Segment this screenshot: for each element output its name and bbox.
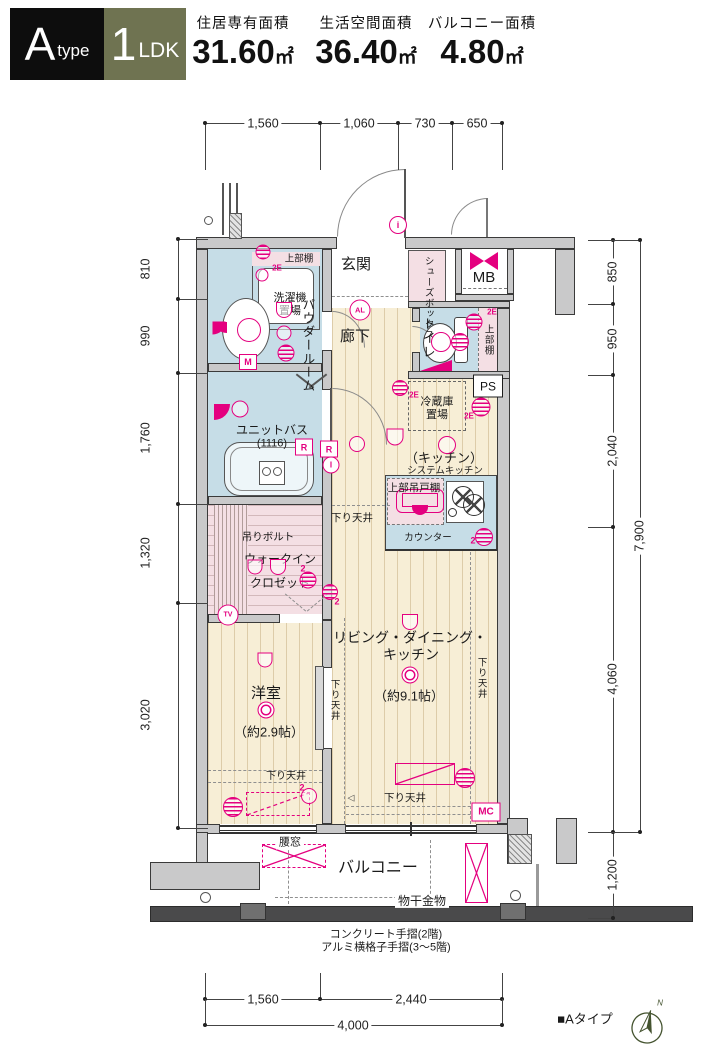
wall-mb-bottom [455, 294, 514, 301]
dim-left-dot [176, 297, 180, 301]
dim-right-inner-label: 2,040 [606, 432, 621, 469]
tag-r1: R [295, 439, 313, 456]
tag-mc: MC [472, 803, 501, 822]
tag-i2: I [323, 457, 340, 474]
light-hall-icon [349, 436, 365, 452]
dim-right-inner-tick [588, 918, 613, 919]
wic-hatch-zone [214, 505, 248, 614]
dim-left-tick [178, 828, 208, 829]
pipe-hatch-right [508, 834, 532, 864]
light-yoshitsu-c-icon [301, 788, 317, 804]
tag-r2: R [320, 441, 338, 458]
mb-bowtie-icon [470, 252, 484, 270]
dim-top-label: 1,560 [244, 116, 281, 131]
balcony-drain-right [510, 890, 521, 901]
label-sagari-yoshitsu: 下り天井 [266, 771, 306, 783]
area-balcony-unit: ㎡ [505, 47, 524, 68]
dim-top-tick [452, 123, 453, 170]
dim-left-label: 990 [139, 323, 154, 350]
light-kitchen-b-icon [438, 436, 456, 454]
label-mb: MB [473, 269, 496, 287]
plan-badge: 1 LDK [104, 8, 186, 80]
balcony-divider-thin [536, 864, 539, 906]
room-label-powder: パウダールーム [300, 298, 315, 362]
wall-bath-wic [208, 496, 322, 505]
vent-laundry-icon [256, 245, 271, 260]
label-sagari-bottom: 下り天井 [384, 792, 426, 804]
dim-top-dot [203, 121, 207, 125]
ldk-door-leaf [330, 388, 332, 445]
light-ldk-a-icon [402, 614, 418, 630]
room-label-yoshitsu: 洋室 [251, 685, 281, 703]
dim-right-inner-tick [588, 527, 613, 528]
dim-right-inner-tick [588, 375, 613, 376]
mb-door-leaf [486, 198, 488, 237]
dim-left-tick [178, 239, 208, 240]
compass-n-label: N [657, 998, 663, 1007]
dim-bottom-seg-tick [320, 973, 321, 999]
dim-bottom-total-tick [205, 999, 206, 1025]
wall-left [196, 249, 208, 832]
wall-top-right [405, 237, 575, 249]
window-yoshitsu [220, 825, 316, 834]
area-living-value: 36.40 [315, 33, 398, 70]
dim-right-inner-label: 1,200 [606, 856, 621, 893]
tag-m: M [239, 354, 257, 370]
door-arrow-icon: ◁ [348, 793, 355, 804]
wall-mb-right [507, 249, 514, 294]
vent-ldk-icon [455, 768, 475, 788]
wic-hanger-b-icon [270, 559, 286, 575]
dim-right-inner-dot [611, 916, 615, 920]
dim-right-inner-tick [588, 304, 613, 305]
dim-right-inner-dot [611, 302, 615, 306]
label-counter: カウンター [404, 532, 452, 543]
dim-bottom-seg-label: 2,440 [392, 992, 429, 1007]
dim-bottom-total-label: 4,000 [334, 1018, 371, 1033]
genkan-step-line [332, 296, 408, 297]
stove-burner-c [448, 508, 457, 517]
dim-left-tick [178, 373, 208, 374]
wall-neighbor-top [555, 249, 575, 315]
handrail-post-left [240, 903, 266, 920]
note-handrail-2: アルミ横格子手摺(3〜5階) [321, 942, 450, 955]
dim-right-inner-label: 950 [606, 326, 621, 353]
dim-top-tick [205, 123, 206, 170]
balcony-drain-left [200, 892, 211, 903]
area-living-unit: ㎡ [398, 47, 417, 68]
compass-icon [625, 1002, 669, 1048]
dim-left-label: 810 [139, 256, 154, 283]
wall-spine-1 [322, 249, 332, 312]
sagari-line-kitchen [332, 505, 390, 506]
dim-right-inner-dot [611, 373, 615, 377]
dim-left-label: 1,760 [139, 419, 154, 456]
dim-left-dot [176, 601, 180, 605]
dim-left-tick [178, 603, 208, 604]
dim-left-label: 1,320 [139, 534, 154, 571]
room-label-ldk-1: リビング・ダイニング・ [333, 630, 487, 647]
label-shoes-box: シューズボックス [422, 256, 433, 306]
dim-bottom-seg-tick [502, 973, 503, 999]
balcony-x-mark [465, 843, 488, 903]
label-upper-shelf-toilet: 上部棚 [482, 323, 493, 357]
vent-powder-icon [278, 345, 295, 362]
shaft-line-a [222, 183, 224, 235]
handrail-post-right [500, 903, 526, 920]
light-ldk-b-icon [402, 667, 419, 684]
label-fridge-2e: 2E [409, 390, 419, 399]
label-yoshitsu-size: （約2.9帖） [234, 724, 304, 739]
dim-bottom-seg-dot [318, 997, 322, 1001]
tag-ps: PS [473, 375, 503, 398]
dim-top-label: 650 [464, 116, 491, 131]
light-bath-icon [232, 401, 249, 418]
shaft-hatch [229, 213, 242, 239]
dim-top-tick [398, 123, 399, 170]
dim-bottom-total-dot [500, 1023, 504, 1027]
note-handrail-1: コンクリート手摺(2階) [330, 929, 442, 942]
basin-light-icon [237, 318, 261, 342]
window-mullion [410, 822, 412, 836]
label-tsuri-bolt: 吊りボルト [242, 531, 295, 543]
label-system-kitchen: システムキッチン [407, 465, 483, 476]
wall-balcony-chunk-r2 [556, 818, 577, 864]
shaft-vent [204, 216, 213, 225]
tag-i: i [389, 216, 407, 234]
vent-wall-icon [472, 398, 491, 417]
dim-top-tick [502, 123, 503, 170]
label-hanging-cupboard: 上部吊戸棚 [388, 482, 441, 494]
wall-spine-5 [322, 748, 332, 824]
label-upper-shelf-laundry: 上部棚 [285, 253, 314, 264]
label-monohoshi: 物干金物 [395, 894, 449, 908]
dim-top-label: 730 [412, 116, 439, 131]
area-balcony-label: バルコニー面積 [428, 12, 536, 33]
room-label-rouka: 廊下 [340, 328, 370, 346]
area-exclusive: 住居専有面積 31.60㎡ [192, 12, 294, 71]
vent-wic-b-icon [322, 584, 338, 600]
label-sagari-ldk-right: 下り天井 [475, 656, 486, 700]
wall-bottom-b [316, 824, 346, 834]
dim-bottom-seg-tick [205, 973, 206, 999]
dim-left-line [178, 239, 179, 828]
vent-yoshitsu-icon [223, 797, 243, 817]
area-living-label: 生活空間面積 [315, 12, 417, 33]
bath-control-dial-b [273, 467, 282, 476]
dim-left-tick [178, 299, 208, 300]
wall-balcony-chunk-left [150, 862, 260, 890]
dim-bottom-total-tick [502, 999, 503, 1025]
type-letter: A [25, 21, 56, 67]
area-exclusive-label: 住居専有面積 [192, 12, 294, 33]
toilet-sym-a-icon [431, 332, 451, 352]
dim-left-dot [176, 502, 180, 506]
wall-mb-left [455, 249, 462, 294]
light-powder-b-icon [277, 326, 292, 341]
vent-counter-icon [475, 528, 493, 546]
label-unit-bath: ユニットバス [236, 423, 308, 437]
room-label-balcony: バルコニー [338, 860, 418, 879]
dim-left-dot [176, 371, 180, 375]
dim-left-dot [176, 826, 180, 830]
room-label-genkan: 玄関 [341, 256, 371, 274]
area-balcony: バルコニー面積 4.80㎡ [428, 12, 536, 71]
dim-top-dot [450, 121, 454, 125]
light-yoshitsu-a-icon [258, 653, 273, 668]
label-sagari-ldk-left: 下り天井 [328, 678, 339, 722]
toilet-sym-b-icon [451, 333, 469, 351]
mb-door-arc [451, 198, 488, 235]
wall-spine-4 [322, 620, 332, 668]
aircon-mark [395, 763, 455, 785]
wic-hanger-a-icon [248, 560, 263, 575]
dim-right-inner-label: 4,060 [606, 660, 621, 697]
label-sagari-kitchen: 下り天井 [331, 512, 373, 524]
dim-left-tick [178, 504, 208, 505]
dim-top-dot [396, 121, 400, 125]
dim-right-outer-dot [638, 830, 642, 834]
stove-burner-b [463, 494, 485, 516]
label-toilet-2e: 2E [487, 307, 497, 316]
area-exclusive-unit: ㎡ [275, 47, 294, 68]
light-powder-a-icon [276, 302, 292, 318]
sagari-line-ldk-left [344, 618, 345, 824]
dim-bottom-seg-label: 1,560 [244, 992, 281, 1007]
area-balcony-value: 4.80 [440, 33, 504, 70]
label-fridge: 冷蔵庫置場 [416, 396, 458, 422]
plan-suffix: LDK [138, 39, 179, 63]
plan-number: 1 [111, 21, 137, 67]
area-living: 生活空間面積 36.40㎡ [315, 12, 417, 71]
dim-top-tick [320, 123, 321, 170]
bath-control-dial-a [262, 467, 271, 476]
dim-top-label: 1,060 [340, 116, 377, 131]
counter-edge [385, 549, 497, 551]
room-label-ldk-2: キッチン [383, 647, 439, 664]
mb-dashed-line [463, 288, 507, 289]
label-koshimado: 腰窓 [276, 837, 304, 850]
type-badge: A type [10, 8, 104, 80]
label-laundry-2e: 2E [272, 263, 282, 272]
toilet-sym-c-icon [466, 314, 483, 331]
dim-right-outer-tick [588, 240, 640, 241]
dim-right-outer-dot [638, 238, 642, 242]
light-laundry-icon [256, 269, 269, 282]
dim-top-dot [318, 121, 322, 125]
tag-tv: TV [218, 605, 239, 626]
sliding-door-leaf [315, 666, 324, 750]
wall-toilet-left-a [412, 308, 420, 322]
dim-left-dot [176, 237, 180, 241]
dim-right-outer-label: 7,900 [633, 517, 648, 554]
dim-top-dot [500, 121, 504, 125]
light-kitchen-a-icon [387, 429, 404, 446]
wall-balcony-left [196, 832, 208, 866]
label-ldk-size: （約9.1帖） [374, 688, 444, 703]
vent-wic-a-icon [300, 572, 317, 589]
wall-spine-2 [322, 350, 332, 390]
dim-left-label: 3,020 [139, 696, 154, 733]
type-suffix: type [57, 41, 89, 61]
dim-right-inner-dot [611, 525, 615, 529]
tag-al: AL [350, 300, 371, 321]
dim-right-outer-tick [588, 832, 640, 833]
footer-type-label: ■Aタイプ [557, 1011, 613, 1026]
label-wic-2b: 2 [334, 597, 339, 608]
dim-right-inner-label: 850 [606, 259, 621, 286]
dim-bottom-total-dot [203, 1023, 207, 1027]
area-exclusive-value: 31.60 [192, 33, 275, 70]
light-yoshitsu-b-icon [258, 702, 275, 719]
vent-fridge-icon [392, 380, 408, 396]
floor-plan-page: A type 1 LDK 住居専有面積 31.60㎡ 生活空間面積 36.40㎡… [0, 0, 703, 1055]
label-unit-bath-size: (1116) [257, 438, 287, 451]
